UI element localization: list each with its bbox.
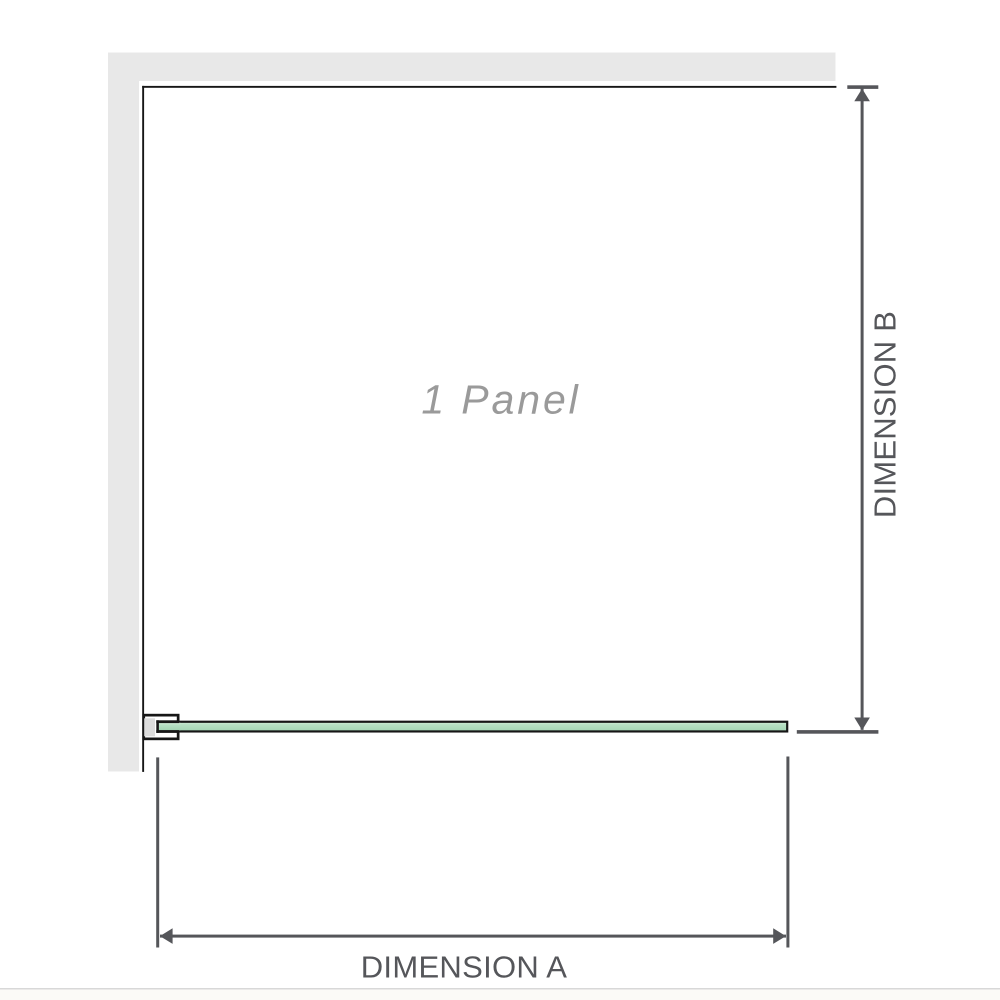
svg-text:DIMENSION B: DIMENSION B (867, 311, 902, 518)
svg-text:1 Panel: 1 Panel (421, 376, 580, 422)
svg-text:DIMENSION A: DIMENSION A (361, 950, 568, 985)
